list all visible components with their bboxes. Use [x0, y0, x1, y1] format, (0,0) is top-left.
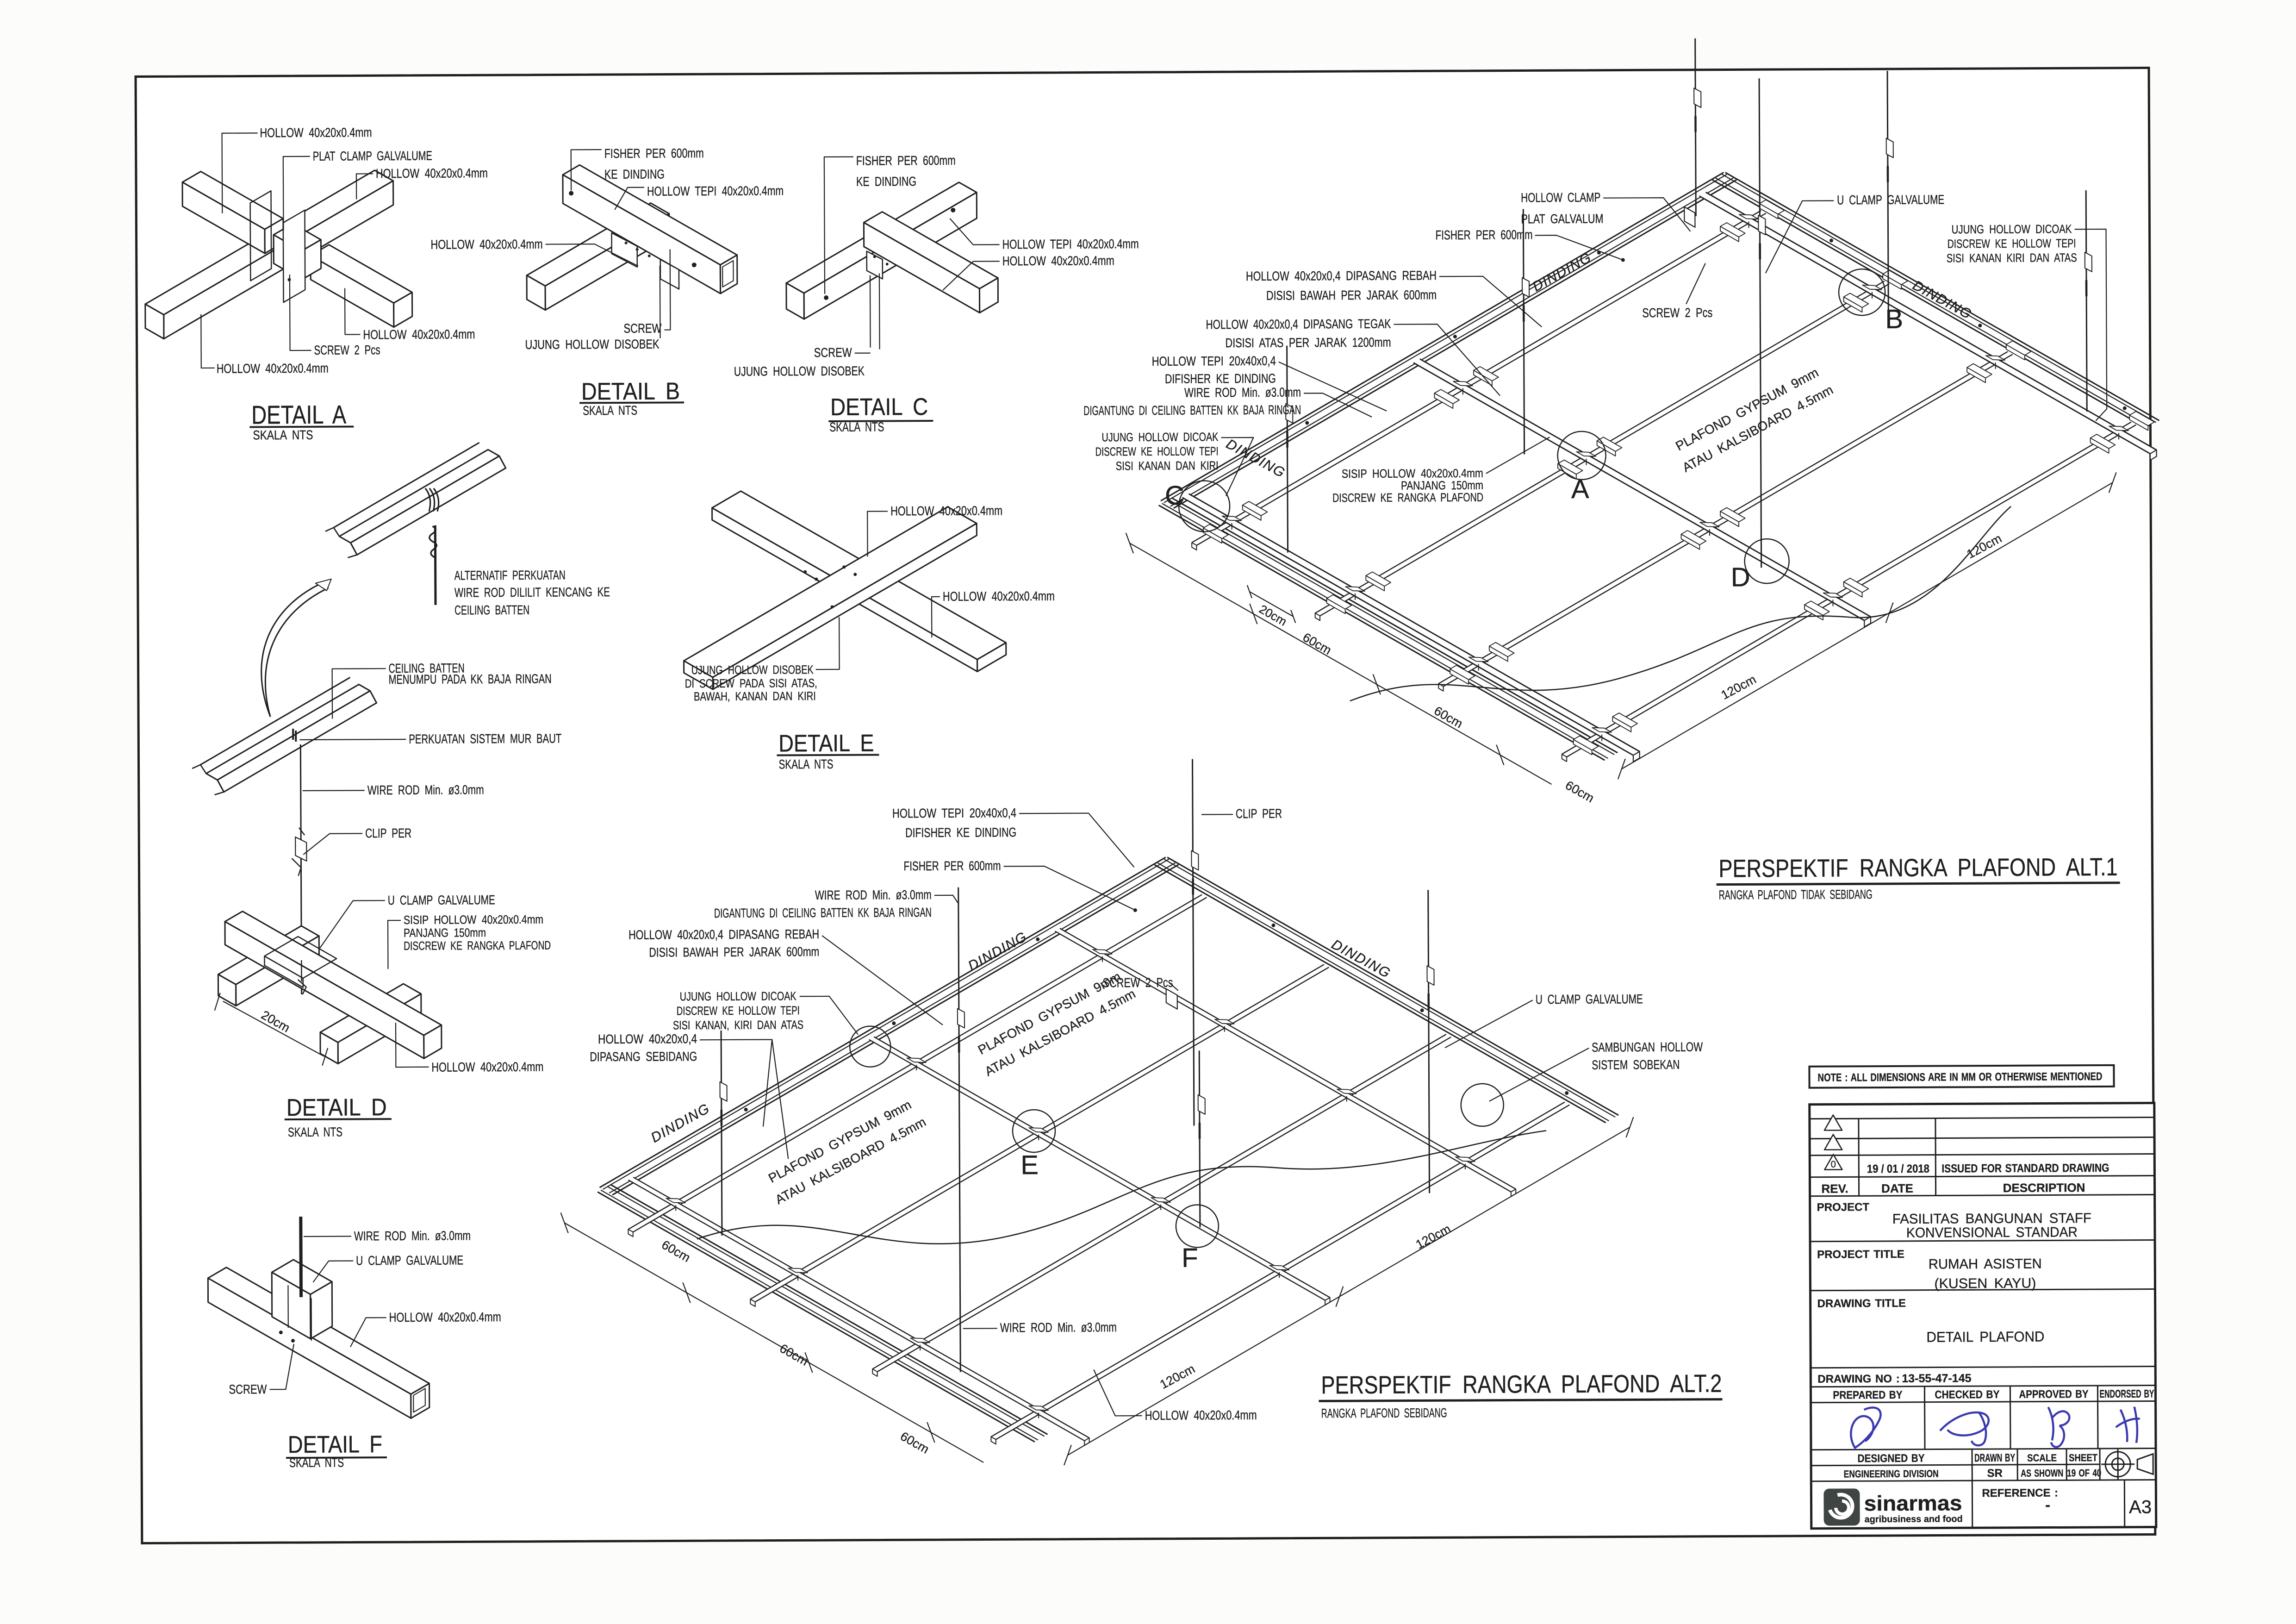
svg-text:DETAIL D: DETAIL D: [286, 1094, 387, 1121]
svg-text:ALTERNATIF PERKUATAN: ALTERNATIF PERKUATAN: [454, 568, 566, 582]
svg-text:C: C: [1165, 481, 1184, 511]
svg-text:A3: A3: [2129, 1497, 2152, 1518]
svg-text:HOLLOW TEPI 40x20x0.4mm: HOLLOW TEPI 40x20x0.4mm: [647, 183, 784, 198]
svg-text:ENGINEERING DIVISION: ENGINEERING DIVISION: [1844, 1468, 1939, 1480]
svg-text:A: A: [1571, 474, 1589, 504]
svg-text:MENUMPU PADA KK BAJA RINGAN: MENUMPU PADA KK BAJA RINGAN: [389, 672, 552, 687]
svg-text:BAWAH, KANAN DAN KIRI: BAWAH, KANAN DAN KIRI: [694, 689, 816, 703]
svg-text:SISI KANAN DAN KIRI: SISI KANAN DAN KIRI: [1116, 458, 1219, 473]
svg-text:E: E: [1020, 1150, 1039, 1180]
svg-text:HOLLOW 40x20x0.4mm: HOLLOW 40x20x0.4mm: [431, 1060, 543, 1074]
svg-text:U CLAMP GALVALUME: U CLAMP GALVALUME: [1536, 992, 1643, 1006]
svg-text:D: D: [1731, 562, 1750, 592]
svg-text:SCREW 2 Pcs: SCREW 2 Pcs: [1642, 306, 1712, 320]
svg-text:WIRE ROD Min. ø3.0mm: WIRE ROD Min. ø3.0mm: [354, 1228, 471, 1243]
svg-text:DETAIL F: DETAIL F: [288, 1431, 382, 1458]
svg-text:AS SHOWN: AS SHOWN: [2021, 1467, 2063, 1479]
svg-text:DIFISHER KE DINDING: DIFISHER KE DINDING: [1165, 371, 1276, 386]
svg-text:WIRE ROD Min. ø3.0mm: WIRE ROD Min. ø3.0mm: [815, 887, 932, 902]
svg-text:U CLAMP GALVALUME: U CLAMP GALVALUME: [1837, 192, 1944, 207]
svg-text:PROJECT: PROJECT: [1817, 1201, 1870, 1213]
svg-text:RANGKA PLAFOND TIDAK SEBIDANG: RANGKA PLAFOND TIDAK SEBIDANG: [1719, 887, 1873, 902]
svg-text:SHEET: SHEET: [2069, 1452, 2098, 1463]
svg-text:DIFISHER KE DINDING: DIFISHER KE DINDING: [905, 825, 1016, 840]
svg-text:DETAIL PLAFOND: DETAIL PLAFOND: [1926, 1329, 2044, 1345]
svg-text:SKALA NTS: SKALA NTS: [829, 419, 884, 434]
svg-text:UJUNG HOLLOW DISOBEK: UJUNG HOLLOW DISOBEK: [525, 337, 660, 352]
svg-text:HOLLOW 40x20x0,4 DIPASANG REBA: HOLLOW 40x20x0,4 DIPASANG REBAH: [628, 927, 819, 942]
svg-text:DESIGNED BY: DESIGNED BY: [1858, 1452, 1925, 1465]
svg-text:DRAWING TITLE: DRAWING TITLE: [1817, 1297, 1906, 1310]
svg-text:sinarmas: sinarmas: [1864, 1491, 1962, 1515]
svg-text:DISISI BAWAH PER JARAK 600mm: DISISI BAWAH PER JARAK 600mm: [649, 944, 819, 960]
svg-text:HOLLOW 40x20x0.4mm: HOLLOW 40x20x0.4mm: [363, 327, 475, 342]
svg-text:RANGKA PLAFOND SEBIDANG: RANGKA PLAFOND SEBIDANG: [1321, 1405, 1447, 1420]
svg-text:DISISI ATAS PER JARAK 1200mm: DISISI ATAS PER JARAK 1200mm: [1226, 335, 1391, 350]
svg-text:FISHER PER 600mm: FISHER PER 600mm: [1436, 227, 1533, 242]
svg-text:HOLLOW 40x20x0,4: HOLLOW 40x20x0,4: [598, 1031, 697, 1046]
svg-text:SKALA NTS: SKALA NTS: [253, 428, 313, 443]
svg-text:KONVENSIONAL STANDAR: KONVENSIONAL STANDAR: [1906, 1224, 2078, 1241]
svg-text:SR: SR: [1987, 1467, 2003, 1480]
svg-text:WIRE ROD Min. ø3.0mm: WIRE ROD Min. ø3.0mm: [1000, 1320, 1117, 1335]
svg-text:SISI KANAN KIRI DAN ATAS: SISI KANAN KIRI DAN ATAS: [1947, 250, 2077, 265]
svg-text:HOLLOW 40x20x0.4mm: HOLLOW 40x20x0.4mm: [1002, 253, 1114, 268]
svg-text:PROJECT TITLE: PROJECT TITLE: [1817, 1248, 1904, 1261]
svg-text:HOLLOW TEPI 20x40x0,4: HOLLOW TEPI 20x40x0,4: [1152, 354, 1276, 369]
svg-text:DIGANTUNG DI CEILING BATTEN KK: DIGANTUNG DI CEILING BATTEN KK BAJA RING…: [714, 905, 932, 920]
svg-text:UJUNG HOLLOW DISOBEK: UJUNG HOLLOW DISOBEK: [734, 364, 865, 379]
svg-text:FISHER PER 600mm: FISHER PER 600mm: [903, 858, 1001, 873]
svg-text:DETAIL C: DETAIL C: [830, 394, 928, 421]
svg-text:HOLLOW 40x20x0,4 DIPASANG REBA: HOLLOW 40x20x0,4 DIPASANG REBAH: [1246, 268, 1437, 283]
svg-text:HOLLOW 40x20x0,4 DIPASANG TEGA: HOLLOW 40x20x0,4 DIPASANG TEGAK: [1206, 317, 1391, 332]
svg-text:19 OF 40: 19 OF 40: [2067, 1467, 2101, 1479]
svg-text:SKALA NTS: SKALA NTS: [778, 757, 833, 772]
svg-text:19 / 01 / 2018: 19 / 01 / 2018: [1867, 1162, 1929, 1176]
svg-text:DETAIL B: DETAIL B: [581, 378, 680, 405]
svg-text:PERSPEKTIF RANGKA PLAFOND ALT.: PERSPEKTIF RANGKA PLAFOND ALT.1: [1718, 853, 2117, 883]
svg-text:SCREW: SCREW: [229, 1382, 267, 1396]
svg-text:SCALE: SCALE: [2027, 1452, 2057, 1463]
svg-text:SKALA NTS: SKALA NTS: [288, 1125, 342, 1140]
svg-text:UJUNG HOLLOW DICOAK: UJUNG HOLLOW DICOAK: [1951, 222, 2072, 236]
svg-text:SKALA NTS: SKALA NTS: [583, 403, 637, 418]
svg-text:WIRE ROD Min. ø3.0mm: WIRE ROD Min. ø3.0mm: [1184, 385, 1301, 400]
svg-text:CLIP PER: CLIP PER: [1236, 806, 1282, 821]
svg-text:CHECKED BY: CHECKED BY: [1935, 1388, 1999, 1401]
svg-text:UJUNG HOLLOW DICOAK: UJUNG HOLLOW DICOAK: [1101, 430, 1219, 444]
svg-text:HOLLOW 40x20x0.4mm: HOLLOW 40x20x0.4mm: [260, 125, 372, 140]
svg-text:13-55-47-145: 13-55-47-145: [1902, 1372, 1971, 1385]
svg-text:DRAWING NO :: DRAWING NO :: [1817, 1373, 1899, 1386]
svg-text:SCREW: SCREW: [814, 345, 852, 360]
svg-text:SISIP HOLLOW 40x20x0.4mm: SISIP HOLLOW 40x20x0.4mm: [404, 912, 543, 927]
svg-text:U CLAMP GALVALUME: U CLAMP GALVALUME: [356, 1253, 463, 1268]
svg-text:HOLLOW TEPI 20x40x0,4: HOLLOW TEPI 20x40x0,4: [892, 806, 1016, 820]
svg-text:ENDORSED BY: ENDORSED BY: [2099, 1388, 2154, 1401]
svg-text:PLAT CLAMP GALVALUME: PLAT CLAMP GALVALUME: [313, 149, 432, 163]
svg-text:WIRE ROD DILILIT KENCANG KE: WIRE ROD DILILIT KENCANG KE: [454, 585, 610, 600]
svg-text:DETAIL E: DETAIL E: [778, 730, 874, 757]
svg-text:SCREW 2 Pcs: SCREW 2 Pcs: [314, 343, 380, 357]
svg-text:FISHER PER 600mm: FISHER PER 600mm: [856, 153, 956, 168]
svg-text:DISCREW KE HOLLOW TEPI: DISCREW KE HOLLOW TEPI: [677, 1003, 800, 1018]
svg-text:HOLLOW 40x20x0.4mm: HOLLOW 40x20x0.4mm: [1145, 1408, 1257, 1423]
svg-text:SISTEM SOBEKAN: SISTEM SOBEKAN: [1592, 1057, 1680, 1072]
svg-text:F: F: [1182, 1243, 1198, 1273]
svg-text:DISCREW KE RANGKA PLAFOND: DISCREW KE RANGKA PLAFOND: [404, 938, 551, 953]
svg-text:PLAT GALVALUM: PLAT GALVALUM: [1521, 212, 1603, 226]
svg-text:HOLLOW 40x20x0.4mm: HOLLOW 40x20x0.4mm: [376, 166, 488, 181]
svg-text:-: -: [2045, 1497, 2050, 1513]
svg-text:agribusiness and food: agribusiness and food: [1865, 1514, 1963, 1524]
svg-text:DISCREW KE RANGKA PLAFOND: DISCREW KE RANGKA PLAFOND: [1332, 490, 1483, 505]
svg-text:DI SCREW PADA SISI ATAS,: DI SCREW PADA SISI ATAS,: [685, 676, 817, 690]
svg-text:SISI KANAN, KIRI DAN ATAS: SISI KANAN, KIRI DAN ATAS: [673, 1018, 803, 1032]
svg-text:KE DINDING: KE DINDING: [604, 167, 665, 182]
svg-text:SCREW: SCREW: [623, 321, 662, 336]
svg-text:DIPASANG SEBIDANG: DIPASANG SEBIDANG: [590, 1049, 697, 1064]
svg-text:HOLLOW 40x20x0.4mm: HOLLOW 40x20x0.4mm: [389, 1310, 501, 1324]
svg-text:CEILING BATTEN: CEILING BATTEN: [454, 603, 529, 618]
svg-text:B: B: [1885, 304, 1903, 334]
svg-text:HOLLOW 40x20x0.4mm: HOLLOW 40x20x0.4mm: [217, 361, 329, 376]
svg-text:UJUNG HOLLOW DICOAK: UJUNG HOLLOW DICOAK: [680, 989, 797, 1003]
svg-text:DESCRIPTION: DESCRIPTION: [2003, 1181, 2085, 1195]
svg-text:CLIP PER: CLIP PER: [365, 826, 411, 840]
svg-text:PREPARED BY: PREPARED BY: [1833, 1389, 1902, 1402]
svg-text:UJUNG HOLLOW DISOBEK: UJUNG HOLLOW DISOBEK: [691, 662, 814, 677]
svg-text:PERKUATAN SISTEM MUR BAUT: PERKUATAN SISTEM MUR BAUT: [409, 731, 561, 746]
svg-text:WIRE ROD Min. ø3.0mm: WIRE ROD Min. ø3.0mm: [367, 782, 484, 797]
svg-text:RUMAH ASISTEN: RUMAH ASISTEN: [1929, 1256, 2042, 1272]
svg-text:0: 0: [1831, 1160, 1836, 1170]
svg-text:KE DINDING: KE DINDING: [856, 174, 916, 189]
svg-text:DRAWN BY: DRAWN BY: [1974, 1452, 2015, 1464]
svg-text:HOLLOW CLAMP: HOLLOW CLAMP: [1521, 190, 1600, 205]
svg-text:ISSUED FOR STANDARD DRAWING: ISSUED FOR STANDARD DRAWING: [1941, 1162, 2109, 1175]
svg-text:DISCREW KE HOLLOW TEPI: DISCREW KE HOLLOW TEPI: [1095, 444, 1219, 458]
svg-text:HOLLOW 40x20x0.4mm: HOLLOW 40x20x0.4mm: [431, 237, 543, 252]
svg-text:SAMBUNGAN HOLLOW: SAMBUNGAN HOLLOW: [1592, 1040, 1703, 1055]
svg-text:U CLAMP GALVALUME: U CLAMP GALVALUME: [388, 893, 495, 907]
svg-text:PANJANG 150mm: PANJANG 150mm: [404, 925, 486, 940]
svg-text:HOLLOW TEPI 40x20x0.4mm: HOLLOW TEPI 40x20x0.4mm: [1002, 237, 1139, 251]
svg-text:REV.: REV.: [1821, 1181, 1848, 1195]
svg-text:SKALA NTS: SKALA NTS: [289, 1455, 344, 1470]
svg-text:DIGANTUNG DI CEILING BATTEN KK: DIGANTUNG DI CEILING BATTEN KK BAJA RING…: [1083, 403, 1301, 418]
svg-text:APPROVED BY: APPROVED BY: [2019, 1388, 2088, 1401]
svg-text:FISHER PER 600mm: FISHER PER 600mm: [604, 146, 704, 161]
svg-text:DETAIL A: DETAIL A: [251, 400, 347, 430]
svg-text:DISCREW KE HOLLOW TEPI: DISCREW KE HOLLOW TEPI: [1948, 236, 2076, 250]
svg-text:DATE: DATE: [1881, 1181, 1913, 1195]
svg-text:NOTE : ALL DIMENSIONS ARE IN M: NOTE : ALL DIMENSIONS ARE IN MM OR OTHER…: [1817, 1070, 2102, 1084]
svg-text:PERSPEKTIF RANGKA PLAFOND ALT.: PERSPEKTIF RANGKA PLAFOND ALT.2: [1321, 1370, 1722, 1399]
svg-text:DISISI BAWAH PER JARAK 600mm: DISISI BAWAH PER JARAK 600mm: [1266, 287, 1437, 303]
svg-text:HOLLOW 40x20x0.4mm: HOLLOW 40x20x0.4mm: [890, 503, 1002, 518]
svg-text:HOLLOW 40x20x0.4mm: HOLLOW 40x20x0.4mm: [943, 589, 1055, 604]
svg-text:(KUSEN KAYU): (KUSEN KAYU): [1934, 1276, 2036, 1292]
